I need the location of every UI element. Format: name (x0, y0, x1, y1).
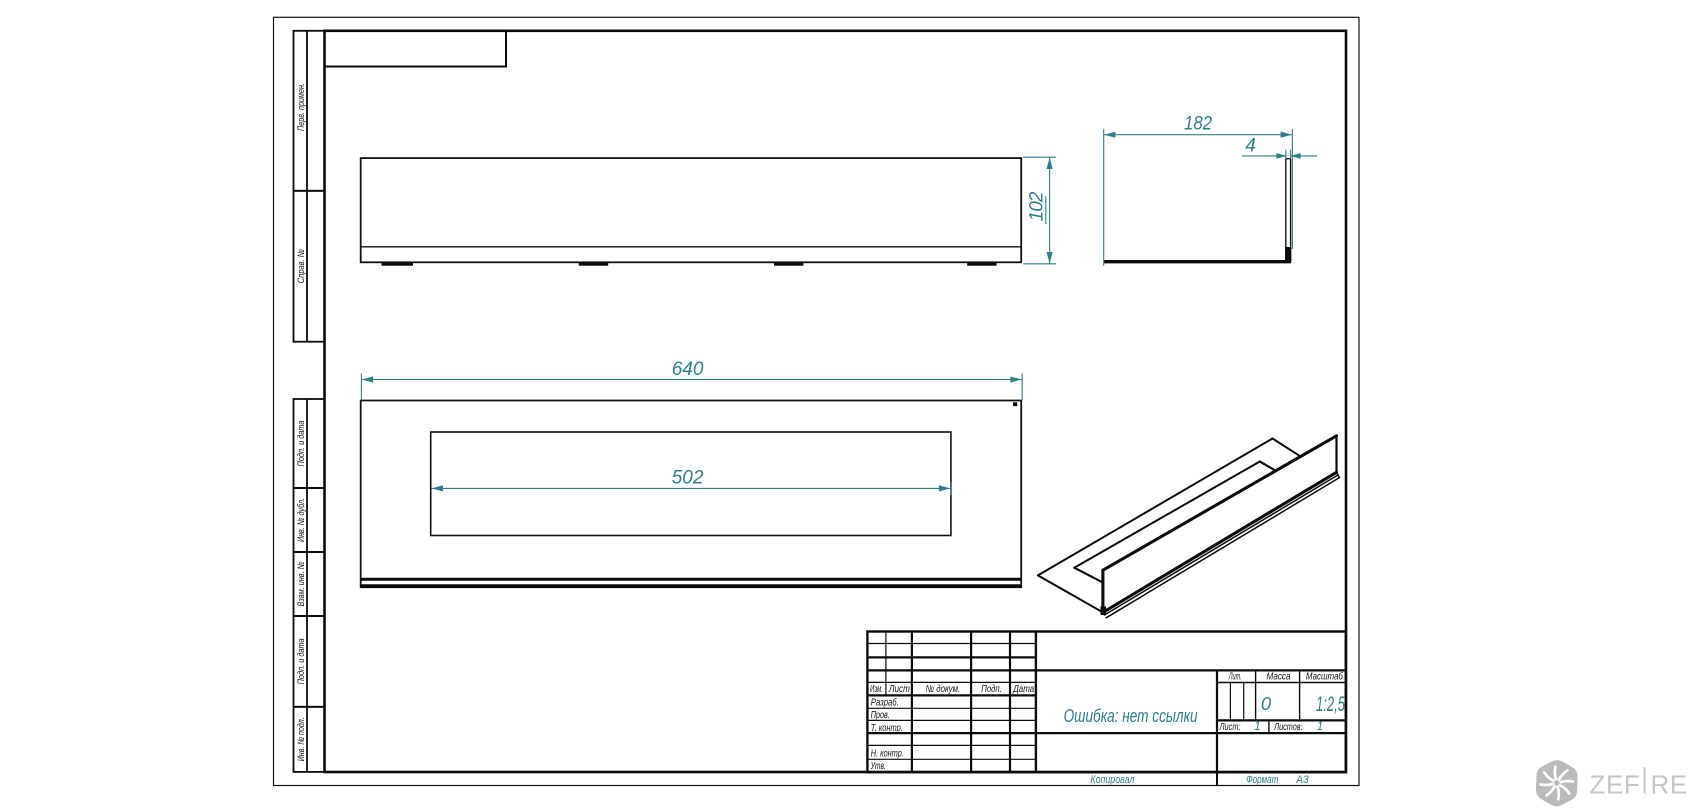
svg-text:4: 4 (1245, 136, 1256, 157)
svg-text:Т. контр.: Т. контр. (871, 723, 903, 734)
svg-text:Н. контр.: Н. контр. (871, 748, 904, 759)
svg-text:102: 102 (1027, 191, 1048, 221)
svg-text:№ докум.: № докум. (926, 684, 961, 695)
svg-text:Ошибка: нет ссылки: Ошибка: нет ссылки (1064, 705, 1198, 726)
svg-text:502: 502 (672, 468, 704, 489)
svg-text:Лист: Лист (888, 684, 910, 695)
svg-text:0: 0 (1261, 693, 1272, 714)
svg-text:Копировал: Копировал (1090, 774, 1134, 786)
svg-text:Формат: Формат (1246, 774, 1278, 786)
svg-text:Перв. примен.: Перв. примен. (296, 83, 307, 131)
svg-text:Подп. и дата: Подп. и дата (296, 638, 307, 684)
svg-text:Изм.: Изм. (870, 684, 883, 695)
svg-text:Дата: Дата (1012, 684, 1034, 695)
svg-text:640: 640 (672, 359, 704, 380)
svg-text:Разраб.: Разраб. (871, 696, 899, 708)
svg-text:Лист:: Лист: (1219, 722, 1241, 733)
svg-text:ZEF: ZEF (1590, 770, 1641, 800)
svg-text:Масштаб: Масштаб (1306, 671, 1343, 683)
svg-text:182: 182 (1184, 114, 1212, 135)
svg-text:1: 1 (1254, 721, 1260, 733)
svg-text:А3: А3 (1295, 774, 1309, 786)
svg-text:Подп.: Подп. (981, 684, 1002, 695)
svg-text:Лит.: Лит. (1228, 672, 1242, 683)
svg-text:Взам. инв. №: Взам. инв. № (296, 562, 307, 607)
svg-text:Пров.: Пров. (871, 710, 890, 721)
svg-text:Справ. №: Справ. № (296, 249, 307, 283)
svg-text:Подп. и дата: Подп. и дата (296, 421, 307, 467)
svg-text:Инв. № дубл.: Инв. № дубл. (296, 498, 307, 542)
svg-text:Масса: Масса (1267, 672, 1291, 683)
svg-text:Утв.: Утв. (870, 761, 886, 772)
svg-text:Листов:: Листов: (1273, 722, 1302, 733)
svg-text:Инв. № подл.: Инв. № подл. (296, 717, 307, 761)
svg-text:1:2,5: 1:2,5 (1316, 693, 1345, 716)
svg-text:RE: RE (1651, 770, 1688, 800)
svg-text:1: 1 (1317, 721, 1323, 733)
